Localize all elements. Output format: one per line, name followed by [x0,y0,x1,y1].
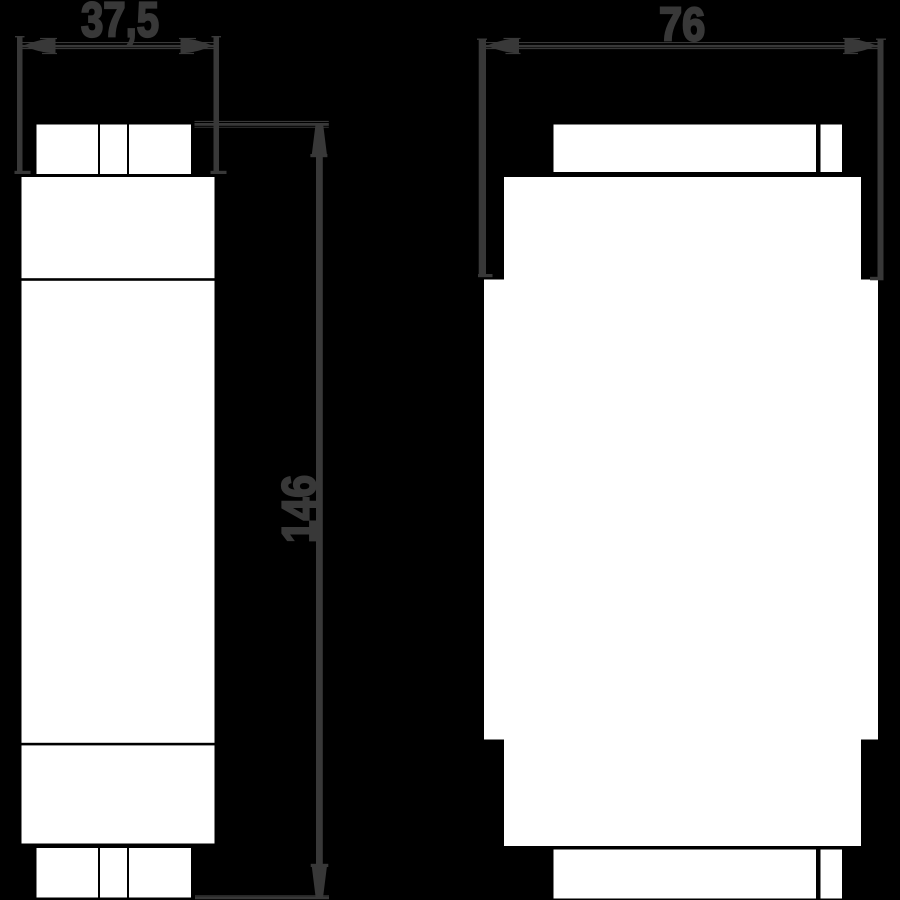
svg-text:37,5: 37,5 [81,0,159,48]
svg-text:76: 76 [659,0,705,51]
svg-text:146: 146 [272,475,325,543]
